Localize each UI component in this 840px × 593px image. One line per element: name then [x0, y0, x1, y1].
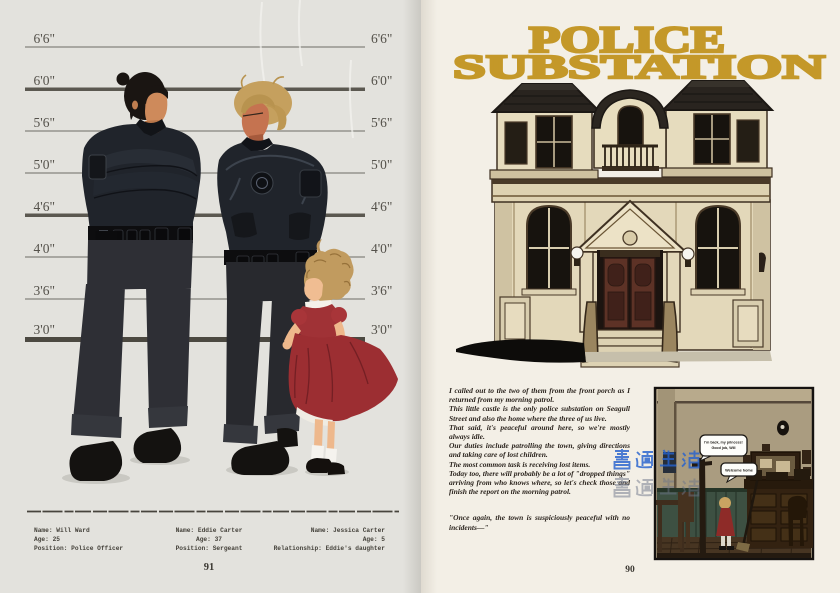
svg-text:6'6": 6'6" [371, 31, 392, 46]
svg-text:3'0": 3'0" [34, 322, 55, 337]
svg-text:Age: 5: Age: 5 [363, 536, 386, 543]
svg-text:I'm back, my princess!: I'm back, my princess! [704, 441, 742, 445]
svg-text:4'0": 4'0" [371, 241, 392, 256]
svg-text:6'6": 6'6" [34, 31, 55, 46]
svg-text:Position: Sergeant: Position: Sergeant [176, 545, 243, 552]
svg-text:Age: 37: Age: 37 [196, 536, 222, 543]
svg-text:Welcome home: Welcome home [725, 469, 753, 473]
svg-text:3'0": 3'0" [371, 322, 392, 337]
svg-text:5'6": 5'6" [371, 115, 392, 130]
svg-text:5'0": 5'0" [371, 157, 392, 172]
svg-text:Age: 25: Age: 25 [34, 536, 60, 543]
svg-text:90: 90 [625, 565, 635, 575]
svg-text:3'6": 3'6" [371, 283, 392, 298]
svg-text:6'0": 6'0" [371, 73, 392, 88]
svg-text:5'0": 5'0" [34, 157, 55, 172]
svg-text:SUBSTATION: SUBSTATION [453, 49, 826, 86]
svg-text:Name: Eddie Carter: Name: Eddie Carter [176, 527, 243, 534]
svg-text:6'0": 6'0" [34, 73, 55, 88]
svg-text:4'6": 4'6" [34, 199, 55, 214]
svg-text:Good job, Will: Good job, Will [711, 446, 735, 450]
svg-text:Name: Jessica Carter: Name: Jessica Carter [311, 527, 386, 534]
svg-text:4'0": 4'0" [34, 241, 55, 256]
svg-text:4'6": 4'6" [371, 199, 392, 214]
svg-text:Relationship: Eddie's daughter: Relationship: Eddie's daughter [274, 545, 386, 552]
svg-text:Position: Police Officer: Position: Police Officer [34, 545, 123, 552]
svg-text:5'6": 5'6" [34, 115, 55, 130]
svg-text:91: 91 [204, 562, 215, 573]
svg-text:3'6": 3'6" [34, 283, 55, 298]
svg-text:Name: Will Ward: Name: Will Ward [34, 527, 90, 534]
